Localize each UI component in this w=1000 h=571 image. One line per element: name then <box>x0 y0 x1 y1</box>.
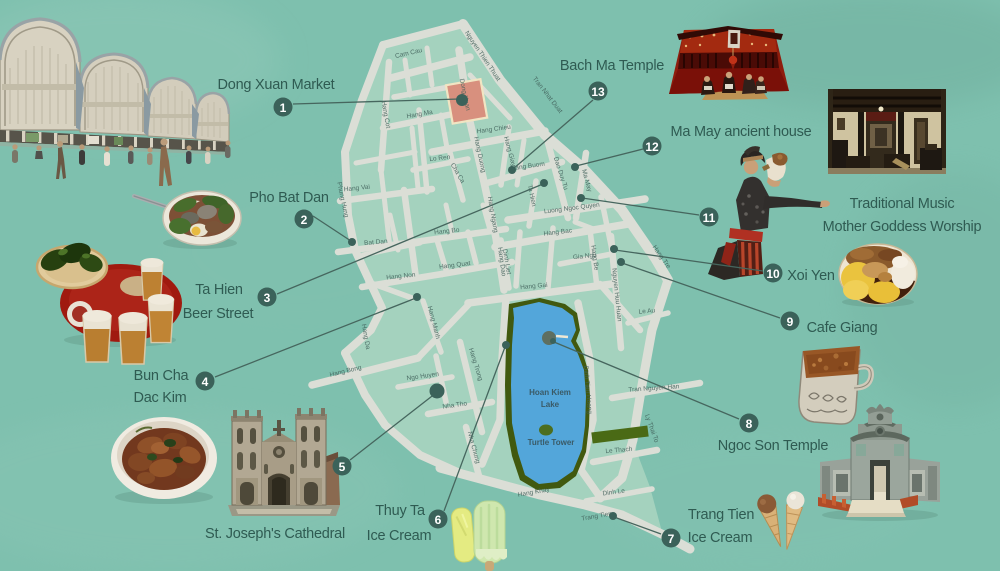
svg-text:Ice Cream: Ice Cream <box>688 530 753 546</box>
svg-text:13: 13 <box>591 85 605 99</box>
svg-text:Ngoc Son Temple: Ngoc Son Temple <box>718 438 829 454</box>
svg-text:11: 11 <box>703 211 716 225</box>
svg-text:Bach Ma Temple: Bach Ma Temple <box>560 58 664 74</box>
svg-text:Hoan Kiem: Hoan Kiem <box>529 388 571 397</box>
svg-text:St. Joseph's Cathedral: St. Joseph's Cathedral <box>205 526 345 542</box>
svg-text:Ice Cream: Ice Cream <box>367 528 432 544</box>
svg-text:8: 8 <box>746 417 753 431</box>
svg-text:Dac Kim: Dac Kim <box>133 390 186 406</box>
svg-text:Ta Hien: Ta Hien <box>195 282 243 298</box>
svg-text:12: 12 <box>645 140 659 154</box>
svg-text:Dong Xuan Market: Dong Xuan Market <box>218 77 335 93</box>
svg-text:Xoi Yen: Xoi Yen <box>787 268 835 284</box>
svg-text:Cafe Giang: Cafe Giang <box>807 320 878 336</box>
svg-text:5: 5 <box>339 460 346 474</box>
svg-text:3: 3 <box>264 291 271 305</box>
svg-text:Thuy Ta: Thuy Ta <box>375 503 426 519</box>
svg-text:Traditional Music: Traditional Music <box>850 196 955 212</box>
svg-text:4: 4 <box>202 375 209 389</box>
svg-text:Mother Goddess Worship: Mother Goddess Worship <box>823 219 982 235</box>
svg-text:6: 6 <box>435 513 442 527</box>
svg-text:2: 2 <box>301 213 308 227</box>
svg-text:7: 7 <box>668 532 675 546</box>
svg-text:Ma May ancient house: Ma May ancient house <box>671 124 812 140</box>
svg-text:Trang Tien: Trang Tien <box>688 507 754 523</box>
svg-text:Beer Street: Beer Street <box>183 306 254 322</box>
svg-text:1: 1 <box>280 101 287 115</box>
svg-text:Turtle Tower: Turtle Tower <box>528 438 575 447</box>
svg-text:10: 10 <box>766 267 780 281</box>
svg-text:Le Au: Le Au <box>638 307 656 315</box>
svg-text:9: 9 <box>787 315 794 329</box>
svg-text:Bun Cha: Bun Cha <box>134 368 190 384</box>
svg-text:Lake: Lake <box>541 400 560 409</box>
svg-text:Pho Bat Dan: Pho Bat Dan <box>249 190 329 206</box>
